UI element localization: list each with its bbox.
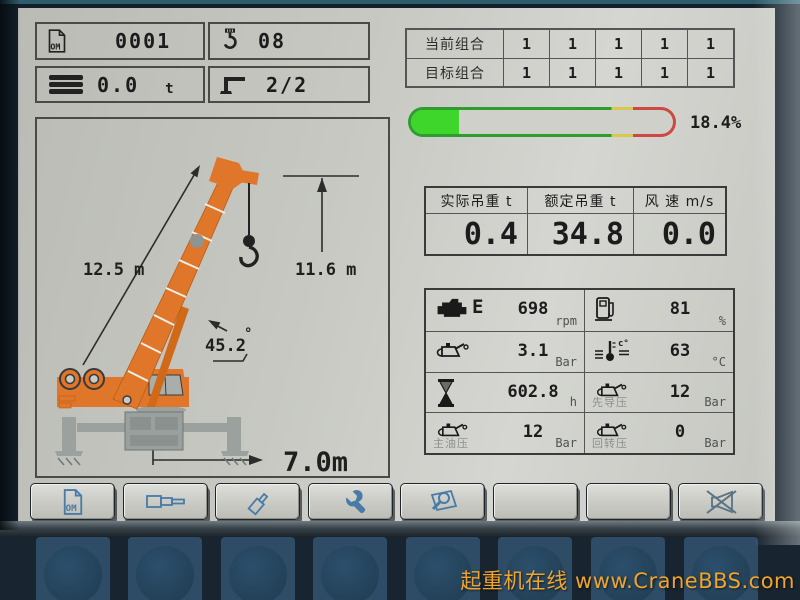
utilization-bar-track [411,110,673,134]
cylinder-button[interactable] [215,483,300,520]
pilot-pressure-cell: 先导压 12 Bar [584,373,733,413]
keypad-tile [128,537,202,600]
mute-speaker-icon [703,489,739,515]
program-number-value: 0001 [115,29,171,53]
inspect-button[interactable] [400,483,485,520]
table-row: 当前组合 1 1 1 1 1 [407,30,733,58]
telescope-sections-icon [146,492,186,512]
svg-text:c°: c° [618,339,629,349]
oil-can-icon [434,337,470,361]
current-combo-label: 当前组合 [407,30,503,58]
crane-boom [113,157,259,409]
radius-label: 7.0m [283,447,348,476]
fuel-level-cell: 81 % [584,290,733,331]
wrench-icon [336,487,366,517]
main-oil-pressure-cell: 主油压 12 Bar [426,413,584,453]
actual-load-header: 实际吊重 t [426,188,527,213]
om-program-button[interactable]: OM [30,483,115,520]
hourglass-icon [434,378,458,408]
utilization-percent: 18.4% [690,113,741,133]
load-table-header: 实际吊重 t 额定吊重 t 风 速 m/s [426,188,725,214]
utilization-bar [408,107,676,137]
temperature-cell: c° 63 °C [584,332,733,372]
watermark: 起重机在线 www.CraneBBS.com [460,565,795,595]
fuel-level-icon [593,295,617,323]
engine-rpm-cell: E 698 rpm [426,290,584,331]
combination-table: 当前组合 1 1 1 1 1 目标组合 1 1 1 1 1 [405,28,735,88]
keypad-key[interactable] [44,546,102,600]
outrigger-box: 2/2 [208,66,370,103]
keypad-key[interactable] [229,546,287,600]
rated-load-header: 额定吊重 t [527,188,633,213]
inspect-document-icon [426,488,460,516]
program-number-box: OM 0001 [35,22,205,60]
actual-load-value: 0.4 [426,214,527,254]
om-document-icon: OM [47,28,67,54]
pilot-pressure-label: 先导压 [592,394,628,410]
hook-block [241,183,257,266]
mute-button[interactable] [678,483,763,520]
hook-height-label: 11.6 m [295,260,356,280]
watermark-site-name: 起重机在线 [460,569,568,593]
outrigger-value: 2/2 [266,73,308,97]
coolant-temperature-icon: c° [593,337,633,363]
telescope-button[interactable] [123,483,208,520]
hydraulic-cylinder-icon [244,487,272,517]
engine-data-panel: E 698 rpm 81 % 3.1 Bar [424,288,735,455]
boom-length-label: 12.5 m [83,260,144,280]
keypad-key[interactable] [136,546,194,600]
settings-button[interactable] [308,483,393,520]
main-oil-pressure-label: 主油压 [433,435,469,451]
operating-hours-cell: 602.8 h [426,373,584,413]
bezel-bar [0,521,800,537]
target-combo-label: 目标组合 [407,59,503,86]
toolbar-button-6[interactable] [493,483,578,520]
wind-speed-header: 风 速 m/s [633,188,725,213]
crane-carrier [55,406,249,465]
outrigger-icon [220,73,248,97]
hook-icon [220,27,240,55]
counterweight-box: 0.0 t [35,66,205,103]
lmi-screen: OM 0001 08 0.0 t 2/2 当前组合 1 1 1 1 1 [18,8,775,521]
slew-pressure-label: 回转压 [592,435,628,451]
counterweight-unit: t [165,81,173,97]
keypad-tile [36,537,110,600]
toolbar-button-7[interactable] [586,483,671,520]
load-table-values: 0.4 34.8 0.0 [426,214,725,254]
rated-load-value: 34.8 [527,214,633,254]
boom-angle-label: 45.2 [205,336,246,356]
crane-diagram: 12.5 m 11.6 m 45.2 ° 7.0m [35,117,390,478]
bezel-top-accent [0,0,800,4]
om-document-icon: OM [62,488,84,516]
keypad-tile [313,537,387,600]
engine-icon: E [434,295,483,319]
counterweight-icon [47,73,85,97]
degree-symbol: ° [244,326,252,342]
load-table: 实际吊重 t 额定吊重 t 风 速 m/s 0.4 34.8 0.0 [424,186,727,256]
keypad-tile [221,537,295,600]
keypad-key[interactable] [321,546,379,600]
reeving-box: 08 [208,22,370,60]
wind-speed-value: 0.0 [633,214,725,254]
utilization-fill [411,110,459,134]
counterweight-value: 0.0 [97,73,139,97]
table-row: 目标组合 1 1 1 1 1 [407,58,733,86]
reeving-value: 08 [258,29,286,53]
engine-oil-pressure-cell: 3.1 Bar [426,332,584,372]
crane-diagram-svg: 12.5 m 11.6 m 45.2 ° 7.0m [37,119,388,476]
slew-pressure-cell: 回转压 0 Bar [584,413,733,453]
watermark-url: www.CraneBBS.com [575,569,795,593]
photo-shade [0,0,20,530]
svg-text:OM: OM [65,503,77,514]
svg-text:OM: OM [50,41,60,51]
